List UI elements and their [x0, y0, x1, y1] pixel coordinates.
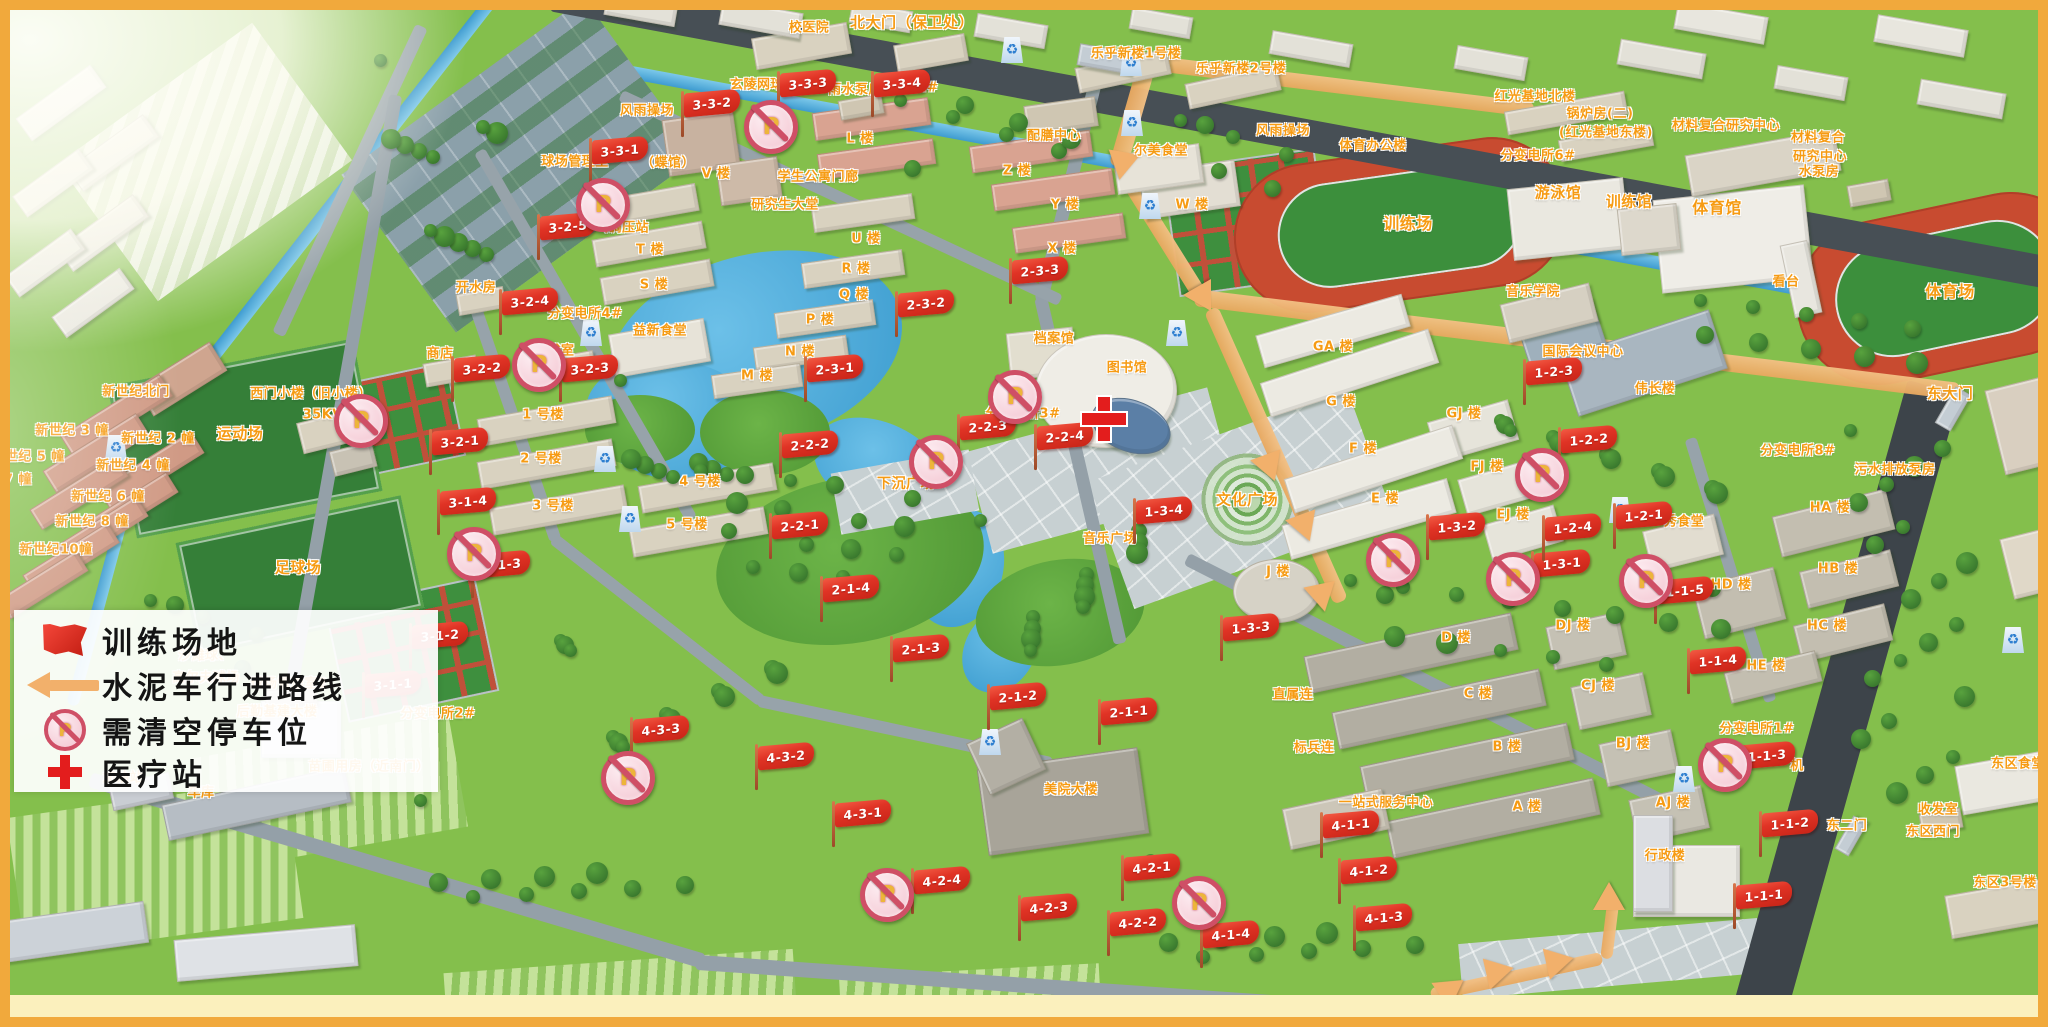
tree [479, 247, 494, 262]
training-flag: 4-3-3 [633, 717, 689, 741]
flag-number: 3-3-4 [874, 69, 930, 98]
training-flag: 4-2-1 [1124, 855, 1180, 879]
tree [381, 129, 401, 149]
tree [621, 449, 641, 469]
flag-icon [43, 624, 87, 656]
no-parking-icon: P [1366, 533, 1420, 587]
training-flag: 4-1-1 [1323, 812, 1379, 836]
map-label: 分变电所1# [1720, 718, 1795, 737]
flag-number: 2-1-4 [823, 574, 879, 603]
training-flag: 4-2-3 [1021, 895, 1077, 919]
recycle-bin-icon: ♻ [1001, 37, 1023, 63]
building [1873, 14, 1968, 58]
map-label: 开水房 [456, 277, 497, 296]
tree [1659, 613, 1678, 632]
tree [424, 224, 437, 237]
map-label: 5 号楼 [666, 514, 708, 533]
tree [1654, 466, 1675, 487]
legend-panel: 训练场地 水泥车行进路线 P 需清空停车位 医疗站 [14, 610, 438, 792]
training-flag: 1-1-1 [1736, 883, 1792, 907]
flag-number: 1-1-2 [1762, 809, 1818, 838]
map-label: HC 楼 [1807, 615, 1847, 634]
map-label: EJ 楼 [1496, 504, 1529, 523]
tree [1694, 294, 1707, 307]
map-label: 音乐学院 [1506, 281, 1560, 300]
no-parking-icon: P [1486, 552, 1540, 606]
training-flag: 3-2-3 [562, 356, 618, 380]
tree [1504, 424, 1517, 437]
building [1846, 179, 1891, 208]
tree [1864, 670, 1881, 687]
flag-number: 4-2-2 [1110, 908, 1166, 937]
recycle-bin-icon: ♻ [1121, 110, 1143, 136]
tree [889, 547, 904, 562]
no-parking-icon: P [909, 435, 963, 489]
flag-number: 4-3-2 [758, 742, 814, 771]
map-label: 玄陵网球 [730, 74, 784, 93]
training-flag: 4-1-3 [1356, 905, 1412, 929]
no-parking-icon: P [1698, 738, 1752, 792]
tree [414, 794, 427, 807]
tree [1934, 440, 1951, 457]
no-parking-icon: P [1172, 876, 1226, 930]
training-flag: 1-3-3 [1223, 615, 1279, 639]
tree [144, 594, 157, 607]
tree [1851, 729, 1871, 749]
flag-number: 1-3-3 [1223, 613, 1279, 642]
training-flag: 4-3-2 [758, 744, 814, 768]
building [1129, 7, 1194, 39]
map-label: R 楼 [841, 258, 870, 277]
recycle-bin-icon: ♻ [2002, 627, 2024, 653]
map-label: 锅炉房(二) [1567, 103, 1634, 122]
map-label: Z 楼 [1003, 160, 1031, 179]
map-label: 红光基地北楼 [1494, 86, 1575, 105]
tree [956, 96, 974, 114]
tree [1849, 493, 1868, 512]
flag-number: 4-3-3 [633, 715, 689, 744]
tree [374, 54, 387, 67]
map-label: F 楼 [1349, 438, 1377, 457]
map-label: S 楼 [640, 274, 668, 293]
map-label: 东区食堂 [1991, 753, 2045, 772]
flag-number: 2-3-1 [807, 354, 863, 383]
tree [736, 466, 754, 484]
building [1453, 45, 1528, 81]
map-label: 东二门 [1827, 815, 1868, 834]
flag-number: 3-3-1 [592, 136, 648, 165]
flag-number: 4-2-3 [1021, 893, 1077, 922]
tree [1599, 657, 1614, 672]
map-label: D 楼 [1441, 627, 1471, 646]
map-label: E 楼 [1371, 488, 1399, 507]
tree [1801, 339, 1821, 359]
tree [841, 539, 861, 559]
map-label: 材料复合研究中心 [1672, 115, 1780, 134]
flag-number: 3-3-2 [684, 89, 740, 118]
map-label: 运动场 [217, 423, 264, 444]
tree [1159, 933, 1178, 952]
building [1999, 526, 2048, 599]
training-flag: 1-2-4 [1545, 515, 1601, 539]
tree [1711, 619, 1731, 639]
map-label: AJ 楼 [1656, 792, 1690, 811]
flag-number: 4-2-4 [914, 866, 970, 895]
tree [1249, 947, 1264, 962]
training-flag: 1-2-3 [1526, 359, 1582, 383]
map-label: C 楼 [1464, 683, 1493, 702]
training-flag: 1-1-4 [1690, 648, 1746, 672]
building [174, 924, 359, 982]
map-label: 校医院 [789, 17, 830, 36]
recycle-bin-icon: ♻ [594, 446, 616, 472]
map-label: 风雨操场 [620, 100, 674, 119]
map-label: T 楼 [636, 239, 664, 258]
no-parking-icon: P [1619, 554, 1673, 608]
map-label: HA 楼 [1810, 497, 1850, 516]
flag-number: 1-2-2 [1561, 425, 1617, 454]
training-flag: 3-3-4 [874, 71, 930, 95]
tree [1799, 307, 1814, 322]
flag-number: 2-1-1 [1101, 697, 1157, 726]
tree [1279, 147, 1294, 162]
no-parking-icon: P [744, 100, 798, 154]
map-label: 分变电所6# [1501, 145, 1576, 164]
map-label: HD 楼 [1710, 574, 1751, 593]
tree [1009, 113, 1028, 132]
no-parking-icon: P [512, 338, 566, 392]
map-label: 新世纪 6 幢 [71, 486, 145, 505]
tree [826, 476, 844, 494]
tree [746, 560, 760, 574]
no-parking-icon: P [1515, 448, 1569, 502]
tree [1494, 644, 1507, 657]
training-flag: 2-1-1 [1101, 699, 1157, 723]
tree [1024, 644, 1037, 657]
flag-number: 4-1-2 [1341, 856, 1397, 885]
flag-number: 2-3-2 [898, 289, 954, 318]
tree [1264, 180, 1281, 197]
map-label: （蝶馆） [641, 152, 695, 171]
recycle-bin-icon: ♻ [619, 506, 641, 532]
training-flag: 1-1-2 [1762, 811, 1818, 835]
no-parking-icon: P [860, 868, 914, 922]
tree [481, 869, 501, 889]
building [1673, 1, 1768, 45]
training-flag: 3-3-3 [780, 71, 836, 95]
recycle-bin-icon: ♻ [1673, 766, 1695, 792]
tree [851, 513, 867, 529]
map-label: X 楼 [1047, 238, 1076, 257]
no-parking-icon: P [601, 751, 655, 805]
tree [1906, 352, 1928, 374]
no-parking-icon: P [44, 709, 86, 751]
flag-number: 3-1-4 [440, 487, 496, 516]
map-label: 配膳中心 [1027, 125, 1081, 144]
flag-number: 4-3-1 [835, 799, 891, 828]
map-label: 体育馆 [1692, 194, 1742, 218]
building [1984, 375, 2048, 474]
tree [1226, 130, 1240, 144]
tree [1881, 713, 1897, 729]
map-label: U 楼 [851, 228, 881, 247]
training-flag: 4-3-1 [835, 801, 891, 825]
map-label: 研究生大堂 [751, 194, 819, 213]
tree [799, 537, 814, 552]
recycle-bin-icon: ♻ [580, 320, 602, 346]
tree [571, 883, 587, 899]
tree [1406, 936, 1424, 954]
flag-number: 1-1-4 [1690, 646, 1746, 675]
campus-map-screenshot: ♻♻♻♻♻♻♻♻♻♻♻♻♻校医院北大门（保卫处）乐乎新楼1号楼乐乎新楼2号楼红光… [0, 0, 2048, 1027]
flag-number: 3-2-2 [454, 354, 510, 383]
tree [721, 523, 737, 539]
map-label: 国际会议中心 [1542, 341, 1623, 360]
map-label: 商店 [426, 343, 453, 362]
training-flag: 3-2-1 [432, 429, 488, 453]
route-arrow-icon [1183, 279, 1211, 311]
map-label: J 楼 [1266, 561, 1290, 580]
recycle-bin-icon: ♻ [1166, 320, 1188, 346]
tree [1844, 424, 1857, 437]
campus-map: ♻♻♻♻♻♻♻♻♻♻♻♻♻校医院北大门（保卫处）乐乎新楼1号楼乐乎新楼2号楼红光… [0, 0, 2048, 1027]
tree [1196, 116, 1214, 134]
training-flag: 3-2-2 [454, 356, 510, 380]
map-label: 直属连 [1273, 684, 1314, 703]
tree [426, 150, 440, 164]
map-label: 污水排放泵房 [1854, 459, 1935, 478]
tree [1854, 346, 1875, 367]
flag-number: 1-2-4 [1545, 513, 1601, 542]
tree [586, 862, 608, 884]
tree [1919, 633, 1938, 652]
tree [946, 110, 960, 124]
tree [1916, 766, 1934, 784]
tree [666, 470, 680, 484]
tree [1901, 589, 1921, 609]
legend-label: 需清空停车位 [102, 708, 312, 752]
training-flag: 4-1-2 [1341, 858, 1397, 882]
tree [534, 866, 555, 887]
map-label: 东区西门 [1906, 821, 1960, 840]
map-label: 新世纪 8 幢 [55, 511, 129, 530]
flag-number: 1-2-1 [1616, 501, 1672, 530]
map-label: HE 楼 [1746, 655, 1785, 674]
flag-number: 2-1-3 [893, 634, 949, 663]
tree [434, 226, 455, 247]
map-label: 新世纪 5 幢 [0, 446, 65, 465]
flag-number: 2-2-1 [772, 511, 828, 540]
tree [466, 890, 480, 904]
tree [1174, 114, 1187, 127]
training-flag: 2-3-2 [898, 291, 954, 315]
tree [624, 880, 641, 897]
map-label: 材料复合 [1791, 127, 1845, 146]
legend-item-medical-station: 医疗站 [28, 750, 207, 794]
map-label: M 楼 [741, 365, 773, 384]
training-flag: 2-3-3 [1012, 258, 1068, 282]
map-label: Y 楼 [1051, 194, 1079, 213]
route-arrow-icon [49, 680, 99, 691]
tree [1886, 782, 1908, 804]
tree [564, 644, 577, 657]
map-label: GJ 楼 [1446, 403, 1481, 422]
legend-item-training-area: 训练场地 [28, 618, 242, 662]
tree [784, 474, 797, 487]
legend-label: 医疗站 [102, 750, 207, 794]
tree [1851, 313, 1867, 329]
tree [1264, 926, 1285, 947]
map-label: 1 号楼 [522, 404, 564, 423]
map-label: 一站式服务中心 [1339, 792, 1434, 811]
tree [1546, 650, 1560, 664]
flag-number: 4-1-1 [1323, 810, 1379, 839]
tree [1879, 477, 1894, 492]
flag-number: 4-1-3 [1356, 903, 1412, 932]
map-label: 游泳馆 [1535, 182, 1582, 203]
map-label: 分变电所8# [1761, 440, 1836, 459]
tree [1954, 686, 1975, 707]
flag-number: 1-3-4 [1136, 496, 1192, 525]
tree [1384, 626, 1405, 647]
map-label: 学生公寓门廊 [777, 166, 858, 185]
map-label: 4 号楼 [679, 471, 721, 490]
training-flag: 2-2-1 [772, 513, 828, 537]
tree [1449, 587, 1464, 602]
training-flag: 1-2-2 [1561, 427, 1617, 451]
tree [1211, 163, 1227, 179]
flag-number: 2-1-2 [990, 682, 1046, 711]
map-label: 足球场 [275, 557, 322, 578]
tree [676, 876, 694, 894]
training-flag: 3-3-2 [684, 91, 740, 115]
tree [1076, 600, 1090, 614]
map-label: 新世纪10幢 [19, 539, 92, 558]
legend-item-clear-parking: P 需清空停车位 [28, 708, 312, 752]
map-label: 看台 [1772, 271, 1799, 290]
tree [1949, 617, 1964, 632]
flag-number: 3-2-3 [562, 354, 618, 383]
tree [1344, 574, 1357, 587]
training-flag: 4-2-2 [1110, 910, 1166, 934]
map-label: G 楼 [1326, 391, 1356, 410]
map-label: 东区3号楼 [1973, 872, 2037, 891]
map-label: 体育场 [1925, 278, 1975, 302]
tree [1706, 482, 1728, 504]
training-flag: 1-3-2 [1429, 514, 1485, 538]
map-label: 伟长楼 [1635, 378, 1676, 397]
tree [726, 492, 748, 514]
tree [1956, 552, 1978, 574]
training-flag: 2-2-2 [782, 432, 838, 456]
flag-number: 4-2-1 [1124, 853, 1180, 882]
building [1616, 39, 1706, 80]
training-flag: 3-1-4 [440, 489, 496, 513]
map-label: BJ 楼 [1616, 733, 1650, 752]
training-flag: 1-3-4 [1136, 498, 1192, 522]
map-label: HB 楼 [1818, 558, 1858, 577]
map-label: 文化广场 [1216, 489, 1278, 510]
tree [1376, 586, 1394, 604]
training-flag: 3-3-1 [592, 138, 648, 162]
tree [1866, 536, 1884, 554]
recycle-bin-icon: ♻ [1139, 193, 1161, 219]
training-flag: 1-2-1 [1616, 503, 1672, 527]
map-label: 尔美食堂 [1134, 140, 1188, 159]
training-flag: 2-1-3 [893, 636, 949, 660]
map-label: A 楼 [1512, 796, 1541, 815]
tree [1354, 940, 1371, 957]
map-label: 分变电所4# [548, 303, 623, 322]
medical-cross-icon [48, 755, 82, 789]
map-label: V 楼 [701, 163, 730, 182]
training-flag: 2-1-4 [823, 576, 879, 600]
map-label: L 楼 [846, 128, 873, 147]
tree [1894, 654, 1907, 667]
map-label: 乐乎新楼2号楼 [1196, 58, 1287, 77]
tree [429, 873, 448, 892]
building [1773, 65, 1848, 101]
tree [1696, 326, 1714, 344]
flag-number: 3-3-3 [780, 69, 836, 98]
map-label: DJ 楼 [1555, 615, 1590, 634]
map-label: FJ 楼 [1470, 456, 1503, 475]
map-label: 新世纪 4 幢 [96, 455, 170, 474]
map-label: 风雨操场 [1256, 120, 1310, 139]
training-flag: 4-2-4 [914, 868, 970, 892]
tree [904, 160, 921, 177]
medical-cross-icon [1081, 396, 1127, 442]
map-label: 新世纪 2 幢 [121, 428, 195, 447]
map-label: 档案馆 [1034, 328, 1075, 347]
map-label: P 楼 [806, 309, 835, 328]
training-flag: 2-1-2 [990, 684, 1046, 708]
map-label: 益新食堂 [633, 320, 687, 339]
tree [789, 563, 808, 582]
map-label: W 楼 [1175, 194, 1208, 213]
building [1916, 79, 2006, 120]
legend-item-cement-route: 水泥车行进路线 [28, 663, 347, 707]
map-label: 北大门（保卫处） [850, 12, 974, 33]
tree [1946, 750, 1960, 764]
map-label: 新世纪北门 [102, 381, 170, 400]
flag-number: 2-2-2 [782, 430, 838, 459]
legend-label: 训练场地 [102, 618, 242, 662]
flag-number: 3-2-4 [502, 287, 558, 316]
training-flag: 2-3-1 [807, 356, 863, 380]
map-label: 美院大楼 [1044, 779, 1098, 798]
map-label: Q 楼 [839, 284, 869, 303]
tree [519, 887, 534, 902]
map-label: 水泵房 [1799, 161, 1840, 180]
map-label: 体育办公楼 [1339, 135, 1407, 154]
flag-number: 1-3-2 [1429, 512, 1485, 541]
no-parking-icon: P [576, 178, 630, 232]
map-label: 训练馆 [1606, 191, 1653, 212]
map-label: 2 号楼 [520, 448, 562, 467]
tree [714, 686, 735, 707]
map-label: (红光基地东楼) [1559, 122, 1653, 141]
route-arrow-icon [1303, 581, 1340, 615]
flag-number: 1-2-3 [1526, 357, 1582, 386]
tree [1196, 950, 1210, 964]
map-label: 7 幢 [4, 469, 32, 488]
no-parking-icon: P [447, 527, 501, 581]
tree [1746, 300, 1760, 314]
map-label: 训练场 [1383, 210, 1433, 234]
tree [1904, 320, 1921, 337]
map-label: CJ 楼 [1581, 675, 1615, 694]
